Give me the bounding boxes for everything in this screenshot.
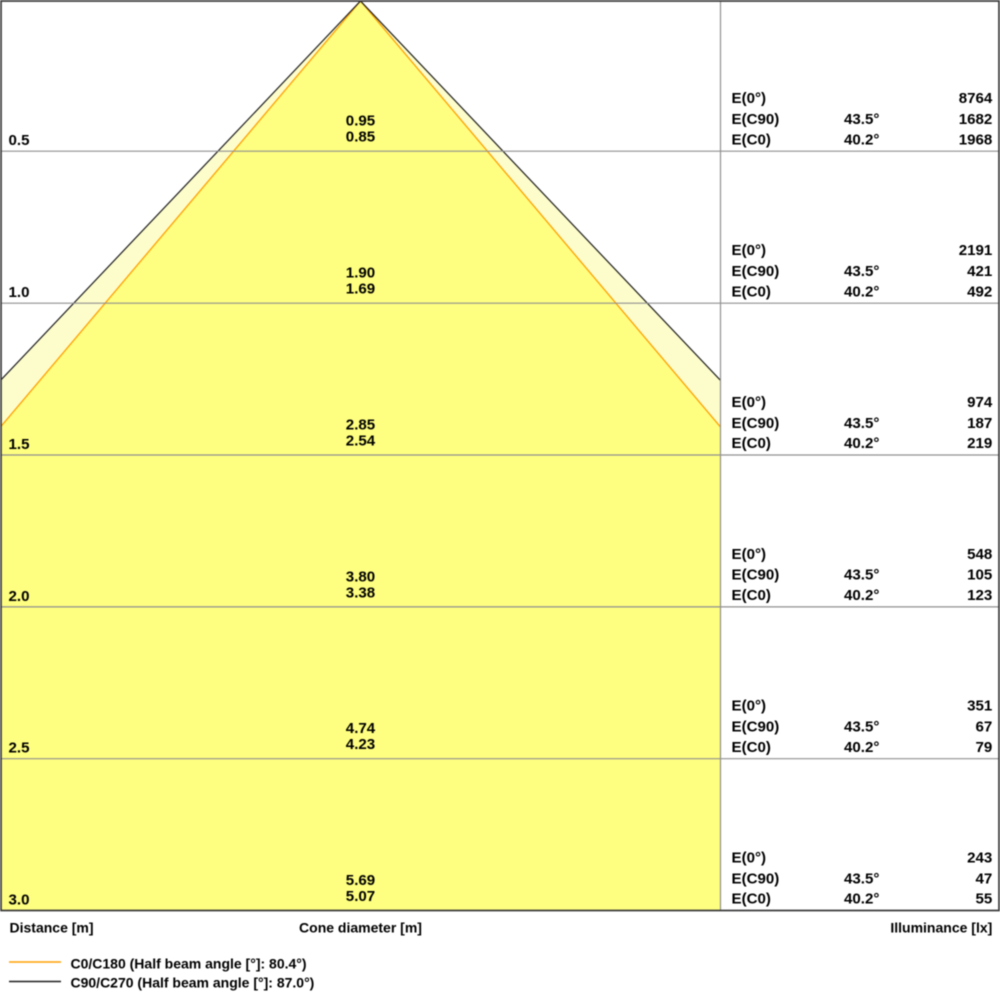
svg-text:0.95: 0.95 [346,113,375,130]
svg-text:Distance [m]: Distance [m] [10,920,94,936]
svg-text:E(C90): E(C90) [732,263,780,280]
svg-text:2191: 2191 [959,242,993,259]
svg-text:E(C90): E(C90) [732,415,780,432]
svg-text:47: 47 [976,870,993,887]
svg-text:8764: 8764 [959,90,993,107]
svg-text:79: 79 [976,739,993,756]
svg-text:5.69: 5.69 [346,872,375,889]
svg-text:43.5°: 43.5° [844,263,879,280]
svg-text:1.90: 1.90 [346,265,375,282]
svg-text:43.5°: 43.5° [844,415,879,432]
svg-text:E(C90): E(C90) [732,870,780,887]
svg-text:187: 187 [967,415,992,432]
svg-text:123: 123 [967,587,992,604]
svg-text:40.2°: 40.2° [844,131,879,148]
svg-text:40.2°: 40.2° [844,739,879,756]
svg-text:E(C0): E(C0) [732,739,771,756]
svg-text:4.74: 4.74 [346,720,376,737]
svg-text:Cone diameter [m]: Cone diameter [m] [299,920,422,936]
svg-text:E(C0): E(C0) [732,587,771,604]
svg-text:40.2°: 40.2° [844,283,879,300]
svg-text:43.5°: 43.5° [844,111,879,128]
svg-text:0.85: 0.85 [346,129,375,146]
svg-text:1.5: 1.5 [9,436,30,453]
svg-text:E(C0): E(C0) [732,891,771,908]
svg-text:1968: 1968 [959,131,993,148]
svg-text:55: 55 [976,891,993,908]
svg-text:E(0°): E(0°) [732,546,767,563]
svg-text:4.23: 4.23 [346,736,375,753]
svg-text:43.5°: 43.5° [844,870,879,887]
svg-text:421: 421 [967,263,992,280]
svg-text:5.07: 5.07 [346,888,375,905]
svg-text:E(C0): E(C0) [732,435,771,452]
svg-text:E(0°): E(0°) [732,850,767,867]
svg-text:E(0°): E(0°) [732,394,767,411]
svg-text:2.0: 2.0 [9,588,30,605]
svg-text:219: 219 [967,435,992,452]
svg-text:E(C0): E(C0) [732,131,771,148]
svg-text:492: 492 [967,283,992,300]
svg-text:C90/C270 (Half beam angle [°]:: C90/C270 (Half beam angle [°]: 87.0°) [71,975,315,991]
svg-text:C0/C180 (Half beam angle [°]:: C0/C180 (Half beam angle [°]: 80.4°) [71,955,307,971]
svg-text:43.5°: 43.5° [844,719,879,736]
svg-text:1682: 1682 [959,111,993,128]
svg-text:E(C90): E(C90) [732,567,780,584]
svg-text:243: 243 [967,850,992,867]
svg-text:2.54: 2.54 [346,433,376,450]
svg-text:40.2°: 40.2° [844,891,879,908]
svg-text:Illuminance [lx]: Illuminance [lx] [890,920,992,936]
svg-text:40.2°: 40.2° [844,435,879,452]
svg-text:43.5°: 43.5° [844,567,879,584]
svg-text:1.0: 1.0 [9,284,30,301]
svg-text:3.80: 3.80 [346,568,375,585]
svg-text:974: 974 [967,394,993,411]
svg-text:0.5: 0.5 [9,132,30,149]
svg-text:67: 67 [976,719,993,736]
svg-text:E(0°): E(0°) [732,698,767,715]
svg-text:351: 351 [967,698,992,715]
svg-text:3.38: 3.38 [346,584,375,601]
svg-text:E(C90): E(C90) [732,111,780,128]
svg-text:3.0: 3.0 [9,892,30,909]
svg-text:1.69: 1.69 [346,281,375,298]
svg-text:E(C0): E(C0) [732,283,771,300]
svg-text:E(0°): E(0°) [732,90,767,107]
svg-text:2.5: 2.5 [9,740,30,757]
svg-text:E(C90): E(C90) [732,719,780,736]
svg-text:548: 548 [967,546,992,563]
svg-text:40.2°: 40.2° [844,587,879,604]
svg-text:105: 105 [967,567,992,584]
svg-text:E(0°): E(0°) [732,242,767,259]
svg-text:2.85: 2.85 [346,417,375,434]
